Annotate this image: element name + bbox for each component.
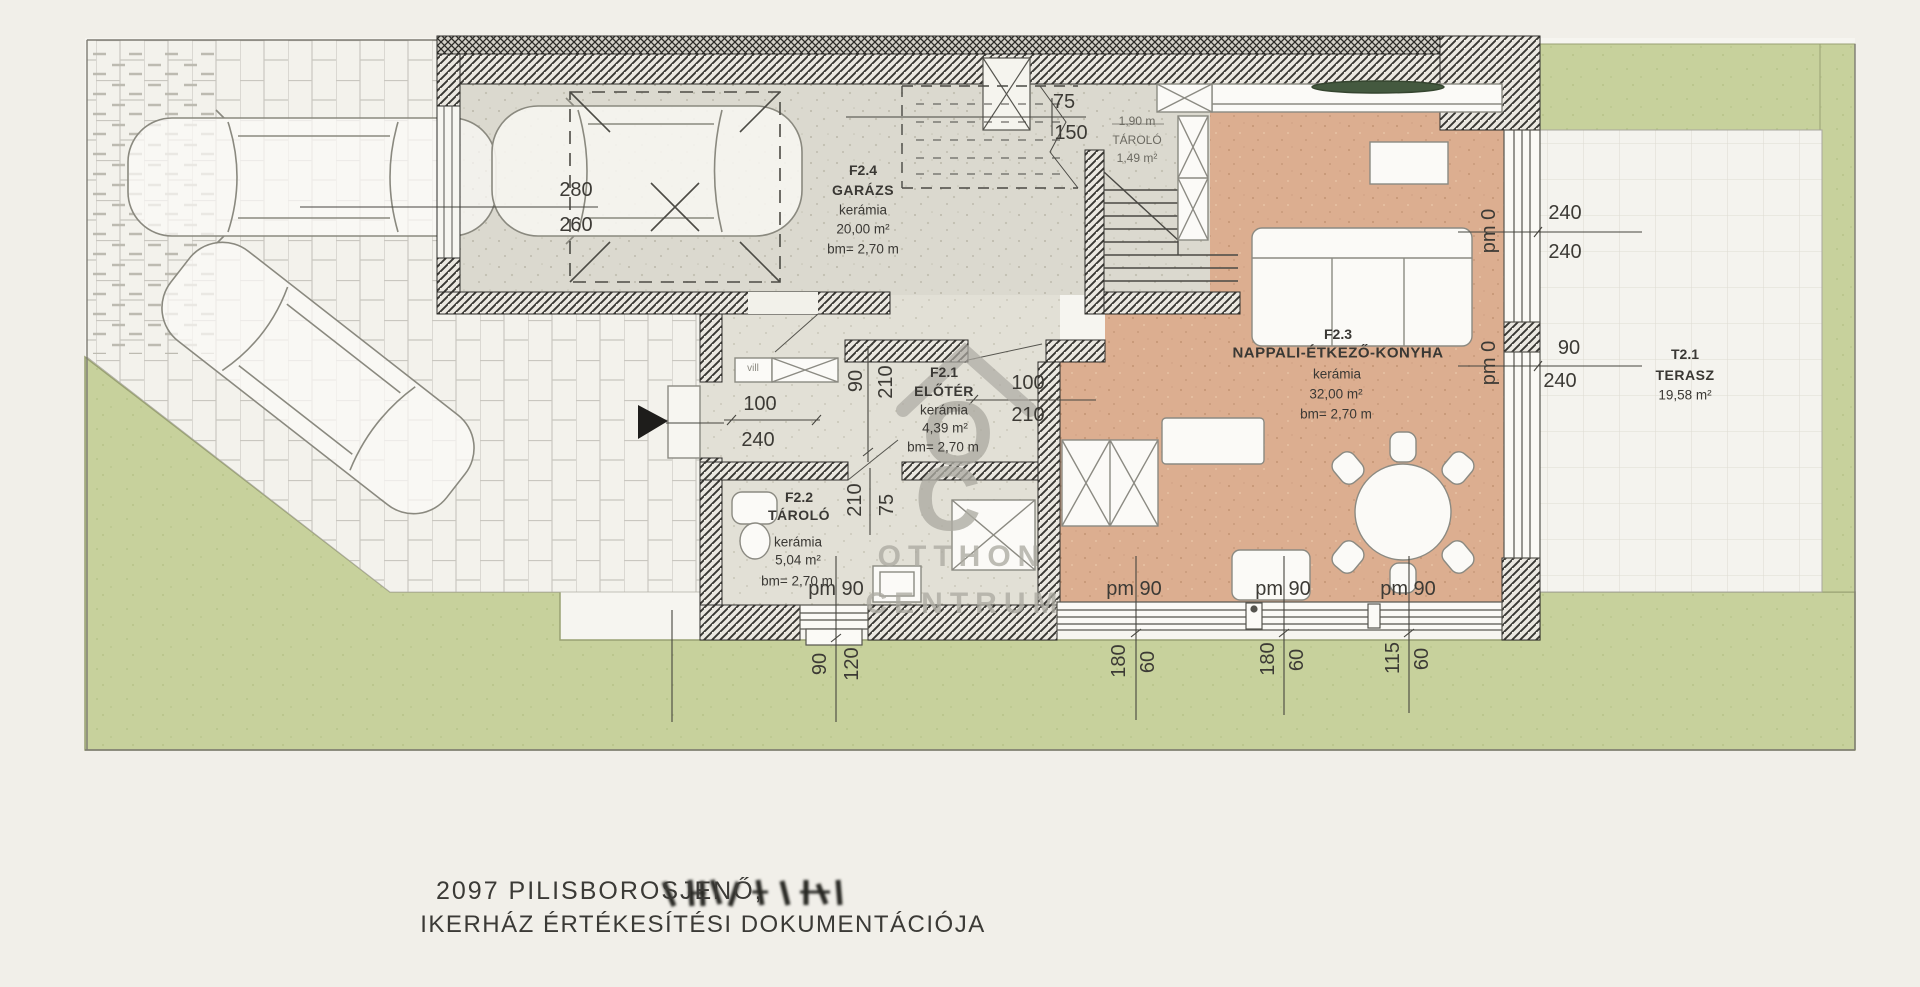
eloter-code: F2.1 [930, 365, 958, 379]
dim-tarolo-side-a: 210 [845, 483, 865, 516]
floor-plan-page: O C OTTHON CENTRUM F2.4 GARÁZS kerámia 2… [0, 0, 1920, 987]
tarolo-code: F2.2 [785, 490, 813, 504]
nappali-height: bm= 2,70 m [1300, 407, 1372, 421]
vent-shaft [983, 58, 1030, 130]
document-address-line: 2097 PILISBOROSJENŐ, [436, 877, 764, 906]
wardrobe [1062, 440, 1158, 526]
garage-finish: kerámia [839, 203, 887, 217]
pm0-label-bottom: pm 0 [1479, 341, 1499, 385]
tarolo-name: TÁROLÓ [768, 508, 830, 522]
living-south-glazing [1057, 602, 1502, 630]
pm90-label-3: pm 90 [1255, 579, 1311, 599]
terasz-area: 19,58 m² [1658, 388, 1711, 402]
dim-bottom3-b: 60 [1287, 649, 1307, 671]
nappali-code: F2.3 [1324, 327, 1352, 341]
right-window-top [1504, 130, 1540, 322]
dim-right-window-top-b: 240 [1548, 242, 1581, 262]
right-window-bottom [1504, 352, 1540, 558]
eloter-area: 4,39 m² [922, 421, 968, 435]
eloter-height: bm= 2,70 m [907, 440, 979, 454]
dim-bottom4-a: 115 [1383, 642, 1403, 674]
dim-tarolo-side-b: 75 [877, 494, 897, 516]
coffee-table [1162, 418, 1264, 464]
understair-name: TÁROLÓ [1112, 134, 1161, 146]
dim-right-window-bottom-a: 90 [1558, 338, 1580, 358]
pm90-label-2: pm 90 [1106, 579, 1162, 599]
dim-bottom1-a: 90 [810, 653, 830, 675]
understair-width: 1,90 m [1119, 115, 1156, 127]
watermark-letter-c: C [915, 453, 981, 545]
tarolo-area: 5,04 m² [775, 553, 821, 567]
dim-garage-width: 280 [559, 180, 592, 200]
dim-garage-depth: 260 [559, 215, 592, 235]
kitchen-island [1370, 142, 1448, 184]
tall-cabinet [1178, 116, 1208, 240]
watermark-word-otthon: OTTHON [878, 542, 1047, 572]
kitchen-cabinet-x [1157, 84, 1212, 112]
dim-living-door-w: 100 [1011, 373, 1044, 393]
dim-eloter-side-a: 90 [846, 370, 866, 392]
dim-bottom3-a: 180 [1258, 642, 1278, 675]
terasz-name: TERASZ [1656, 368, 1715, 382]
car-in-garage [492, 98, 802, 244]
dim-stair-run: 150 [1054, 123, 1087, 143]
pm90-label-1: pm 90 [808, 579, 864, 599]
dim-bottom1-b: 120 [842, 647, 862, 680]
dim-bottom2-b: 60 [1138, 651, 1158, 673]
garage-height: bm= 2,70 m [827, 242, 899, 256]
dim-entry-door-h: 240 [741, 430, 774, 450]
kitchen-plant [1312, 81, 1444, 93]
document-subtitle-line: IKERHÁZ ÉRTÉKESÍTÉSI DOKUMENTÁCIÓJA [420, 911, 985, 939]
sofa [1252, 228, 1472, 346]
understair-area: 1,49 m² [1117, 152, 1158, 164]
terasz-code: T2.1 [1671, 347, 1699, 361]
dim-stair-width: 75 [1053, 92, 1075, 112]
entry-step [668, 386, 700, 458]
tarolo-finish: kerámia [774, 535, 822, 549]
eloter-name: ELŐTÉR [914, 384, 974, 398]
eloter-finish: kerámia [920, 403, 968, 417]
pm90-label-4: pm 90 [1380, 579, 1436, 599]
nappali-name: NAPPALI-ÉTKEZŐ-KONYHA [1232, 346, 1443, 361]
hall-cabinet-x [772, 358, 838, 382]
dim-bottom2-a: 180 [1109, 644, 1129, 677]
garage-code: F2.4 [849, 163, 877, 177]
vill-label: vill [747, 364, 759, 374]
dim-bottom4-b: 60 [1412, 648, 1432, 670]
garage-name: GARÁZS [832, 183, 894, 197]
dim-eloter-side-b: 210 [876, 365, 896, 398]
nappali-finish: kerámia [1313, 367, 1361, 381]
watermark-word-centrum: CENTRUM [866, 589, 1065, 619]
dim-entry-door-w: 100 [743, 394, 776, 414]
garage-area: 20,00 m² [836, 222, 889, 236]
dim-living-door-h: 210 [1011, 405, 1044, 425]
dim-right-window-bottom-b: 240 [1543, 371, 1576, 391]
nappali-area: 32,00 m² [1309, 387, 1362, 401]
dim-right-window-top-a: 240 [1548, 203, 1581, 223]
pm0-label-top: pm 0 [1479, 209, 1499, 253]
grass-right-band [1820, 44, 1855, 592]
